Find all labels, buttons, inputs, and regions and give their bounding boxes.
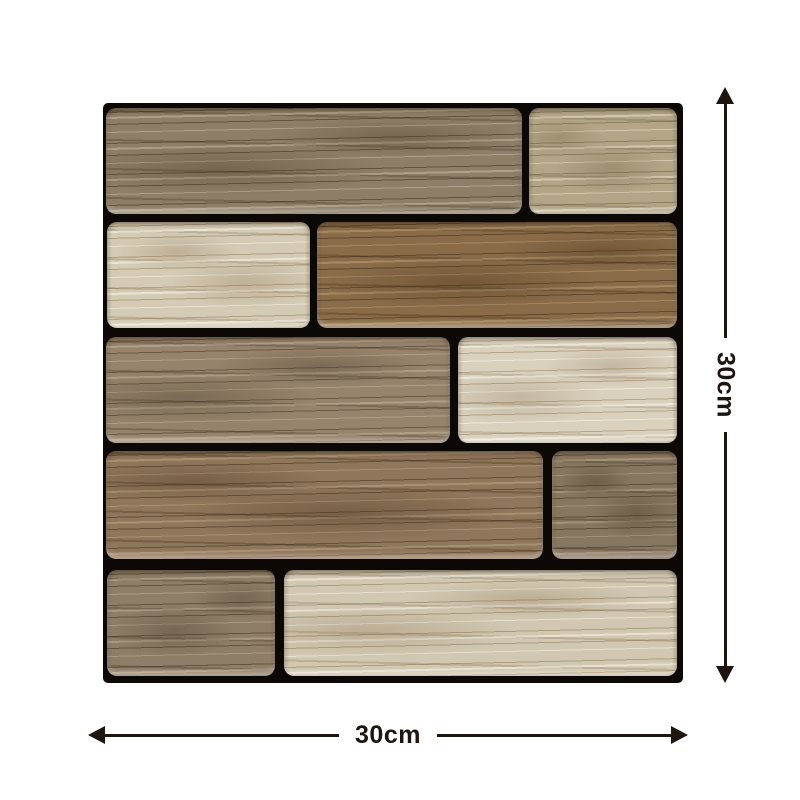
wood-plank bbox=[284, 570, 677, 676]
wood-plank bbox=[317, 222, 677, 328]
wood-plank bbox=[529, 108, 677, 214]
dimension-line bbox=[724, 432, 727, 666]
width-dimension: 30cm bbox=[88, 726, 688, 744]
dimension-line bbox=[437, 734, 671, 737]
wood-plank bbox=[552, 451, 677, 559]
dimension-line bbox=[105, 734, 339, 737]
wood-plank bbox=[107, 570, 275, 676]
wood-plank bbox=[458, 337, 677, 443]
wood-plank bbox=[106, 337, 450, 443]
width-dimension-label: 30cm bbox=[355, 721, 421, 750]
height-dimension: 30cm bbox=[716, 87, 734, 683]
product-dimension-diagram: 30cm 30cm bbox=[0, 0, 800, 800]
arrow-left-icon bbox=[88, 726, 105, 744]
arrow-down-icon bbox=[716, 666, 734, 683]
height-dimension-label: 30cm bbox=[711, 352, 740, 418]
wood-plank bbox=[107, 222, 310, 328]
dimension-line bbox=[724, 104, 727, 338]
wood-plank bbox=[106, 108, 522, 214]
wood-plank bbox=[106, 451, 543, 559]
tile-sticker-image bbox=[103, 103, 683, 683]
arrow-up-icon bbox=[716, 87, 734, 104]
arrow-right-icon bbox=[671, 726, 688, 744]
